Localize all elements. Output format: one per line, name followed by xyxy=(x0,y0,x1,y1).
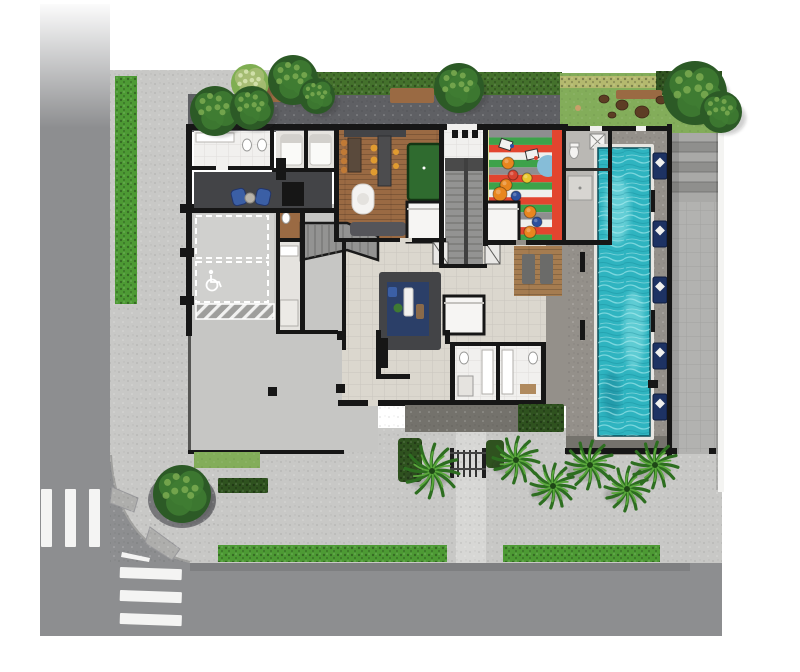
tree-highlight xyxy=(444,75,450,81)
garden-bench xyxy=(616,90,662,99)
bar-stool xyxy=(341,149,347,155)
palm-crown xyxy=(550,483,556,489)
palm-crown xyxy=(652,462,658,468)
tree-highlight xyxy=(706,83,714,91)
toy xyxy=(510,144,514,148)
cushion xyxy=(388,287,397,297)
tree-highlight xyxy=(675,76,683,84)
crosswalk-bar xyxy=(89,489,100,547)
site-plan-image xyxy=(0,0,800,672)
site-plan-svg xyxy=(0,0,800,672)
pouf-highlight xyxy=(510,172,514,176)
bar-stool xyxy=(341,158,347,164)
long-table xyxy=(404,288,413,316)
wall-stub xyxy=(651,190,655,212)
pouf-highlight xyxy=(496,189,501,194)
wood-planter xyxy=(390,88,434,103)
parking-stall-zone xyxy=(194,214,274,306)
shower xyxy=(458,376,473,396)
tree-highlight xyxy=(223,103,229,109)
tree-highlight xyxy=(245,92,250,97)
crosswalk-bar xyxy=(120,590,182,603)
stair-divider xyxy=(464,158,468,266)
door-gap xyxy=(516,240,526,245)
lot-edge-shadow xyxy=(716,100,718,490)
fruit-bowl xyxy=(393,163,399,169)
tree-highlight xyxy=(192,485,199,492)
tree-highlight xyxy=(713,107,718,112)
tree-highlight xyxy=(459,81,465,87)
pouf xyxy=(416,304,424,319)
tree-highlight xyxy=(450,83,456,89)
tree-highlight xyxy=(721,106,726,111)
bar-stool xyxy=(341,140,347,146)
play-pouf xyxy=(532,217,542,227)
tree-highlight xyxy=(251,71,256,76)
tree-highlight xyxy=(238,73,243,78)
hedge-texture xyxy=(218,545,447,562)
vanity xyxy=(482,350,493,394)
door-gap xyxy=(368,400,378,406)
gate-rail xyxy=(450,452,486,454)
lounge-sofa xyxy=(350,222,406,236)
tree-highlight xyxy=(198,109,204,115)
tree-highlight xyxy=(163,492,170,499)
play-mat-stripe xyxy=(489,130,552,137)
tree-highlight xyxy=(207,93,213,99)
hedge-texture xyxy=(503,545,660,562)
tree-highlight xyxy=(215,104,221,110)
tree-highlight xyxy=(696,73,704,81)
tree-highlight xyxy=(725,111,730,116)
terrace xyxy=(670,100,724,492)
pouf-highlight xyxy=(524,175,528,179)
mulch-patch xyxy=(608,112,616,118)
side-table xyxy=(245,193,255,203)
tree-highlight xyxy=(237,106,242,111)
bed-pillow xyxy=(310,135,331,143)
tree-highlight xyxy=(164,479,171,486)
tree-highlight xyxy=(294,65,300,71)
tree-highlight xyxy=(256,77,261,82)
tree-highlight xyxy=(694,84,702,92)
left-hedge xyxy=(115,76,137,304)
mulch-patch xyxy=(599,95,609,103)
lot-shadow xyxy=(190,563,690,571)
sink-counter xyxy=(280,246,298,256)
fruit-bowl xyxy=(371,169,378,176)
palm-crown xyxy=(429,468,435,474)
palm-crown xyxy=(587,462,593,468)
bar-stool xyxy=(341,167,347,173)
gate-bar xyxy=(469,450,471,477)
crosswalk-bar xyxy=(41,489,52,547)
tree-highlight xyxy=(253,82,258,87)
building-shadow-east xyxy=(672,128,679,454)
tree-highlight xyxy=(683,86,691,94)
toilet xyxy=(243,139,252,151)
hedge-texture xyxy=(518,404,564,432)
toilet xyxy=(282,213,290,224)
fruit-bowl xyxy=(393,149,399,155)
crosswalk-vertical xyxy=(41,489,100,547)
door-gap xyxy=(216,166,228,170)
play-pouf xyxy=(508,170,518,180)
tree-highlight xyxy=(253,94,258,99)
pool-lounger xyxy=(653,277,667,303)
tree-highlight xyxy=(243,79,248,84)
lawn-texture xyxy=(194,452,260,468)
bath-bench xyxy=(520,384,536,394)
structural-column xyxy=(268,387,277,396)
water-ripples xyxy=(598,148,650,436)
crosswalk-horizontal xyxy=(120,567,182,626)
shower xyxy=(280,300,298,326)
pool-lounger xyxy=(653,153,667,179)
tree-highlight xyxy=(674,91,682,99)
gate-bar xyxy=(463,450,465,477)
counter-inner xyxy=(357,193,369,205)
road-top-fade xyxy=(38,0,114,128)
lot-edge xyxy=(718,100,724,492)
wall-stub xyxy=(709,448,716,454)
toilet xyxy=(258,139,267,151)
gate-rail xyxy=(450,468,486,470)
tree-highlight xyxy=(285,62,291,68)
tree-highlight xyxy=(722,99,727,104)
play-mat-stripe xyxy=(489,137,552,144)
toilet xyxy=(460,352,469,364)
tree-highlight xyxy=(259,101,264,106)
gate-bar xyxy=(475,450,477,477)
tree-highlight xyxy=(256,106,261,111)
hedge-texture xyxy=(218,478,268,493)
fruit-bowl xyxy=(371,145,378,152)
wheelchair-head xyxy=(209,270,213,274)
plant xyxy=(394,304,403,313)
tree-highlight xyxy=(728,105,733,110)
tree-highlight xyxy=(301,72,307,78)
armchair xyxy=(254,188,271,207)
tree-highlight xyxy=(284,75,290,81)
tree-highlight xyxy=(238,97,243,102)
tree-highlight xyxy=(181,486,188,493)
wall-gap xyxy=(636,126,646,131)
tree-highlight xyxy=(252,102,257,107)
bike-rack xyxy=(452,130,458,138)
pool-lounger xyxy=(653,221,667,247)
tree-highlight xyxy=(171,488,178,495)
tree-highlight xyxy=(298,78,304,84)
play-pouf xyxy=(493,187,507,201)
hatched-zone xyxy=(196,304,274,319)
pouf-highlight xyxy=(526,208,530,212)
tree-highlight xyxy=(216,96,222,102)
pouf-highlight xyxy=(502,181,506,185)
tree-highlight xyxy=(183,476,190,483)
tree-highlight xyxy=(320,95,324,99)
wall-stub xyxy=(580,252,585,272)
tree-highlight xyxy=(310,92,314,96)
tree-highlight xyxy=(293,73,299,79)
billiard-table xyxy=(408,144,441,200)
bike-rack xyxy=(462,130,468,138)
play-pouf xyxy=(502,157,514,169)
mulch-patch xyxy=(616,100,628,110)
door-gap xyxy=(400,238,412,242)
planter-box xyxy=(648,380,658,388)
tree-highlight xyxy=(442,86,448,92)
toilet-tank xyxy=(570,143,579,147)
play-pouf xyxy=(522,173,532,183)
tree-highlight xyxy=(323,90,327,94)
wall-stub xyxy=(580,320,585,340)
tree-highlight xyxy=(318,85,322,89)
play-mat-stripe xyxy=(489,175,552,182)
deck-lounger xyxy=(540,254,553,284)
pet xyxy=(575,105,581,111)
play-pouf xyxy=(511,191,521,201)
tree-highlight xyxy=(244,69,249,74)
play-pouf xyxy=(524,206,536,218)
tree-highlight xyxy=(305,95,309,99)
vanity xyxy=(502,350,513,394)
wall-stub xyxy=(651,310,655,332)
fruit-bowl xyxy=(371,157,378,164)
tree-highlight xyxy=(173,473,180,480)
play-mat-stripe xyxy=(489,145,552,152)
play-pouf xyxy=(524,226,536,238)
tree-highlight xyxy=(244,103,249,108)
crosswalk-bar xyxy=(120,613,182,626)
tree-highlight xyxy=(451,70,457,76)
deck-planks xyxy=(514,246,562,296)
pouf-highlight xyxy=(526,228,530,232)
tree-highlight xyxy=(467,80,473,86)
tree-highlight xyxy=(311,83,315,87)
pool-lounger xyxy=(653,343,667,369)
tree-highlight xyxy=(278,67,284,73)
crosswalk-bar xyxy=(65,489,76,547)
kitchen-island xyxy=(378,136,391,186)
bar-counter xyxy=(348,138,361,172)
entrance-gap xyxy=(447,124,477,130)
tree-highlight xyxy=(220,109,226,115)
pouf-highlight xyxy=(513,193,517,197)
shower-drain xyxy=(579,187,582,190)
bed-pillow xyxy=(281,135,302,143)
tree-highlight xyxy=(317,91,321,95)
tree-highlight xyxy=(187,492,194,499)
mulch-patch xyxy=(635,106,649,118)
tree-highlight xyxy=(707,111,712,116)
bike-rack xyxy=(472,130,478,138)
tree-highlight xyxy=(714,97,719,102)
tree-highlight xyxy=(200,98,206,104)
elevator xyxy=(444,296,484,334)
tree-highlight xyxy=(250,78,255,83)
tree-highlight xyxy=(206,106,212,112)
palm-crown xyxy=(513,457,519,463)
tree-highlight xyxy=(237,82,242,87)
structural-column xyxy=(336,384,345,393)
hedge-texture xyxy=(115,76,137,304)
billiard-ball xyxy=(423,167,426,170)
wall-gap xyxy=(590,126,602,131)
tree-highlight xyxy=(464,86,470,92)
toilet xyxy=(529,352,538,364)
palm-crown xyxy=(624,486,630,492)
toy xyxy=(534,156,538,160)
crosswalk-bar xyxy=(120,567,182,580)
pool-lounger xyxy=(653,394,667,420)
tree-highlight xyxy=(685,70,693,78)
pouf-highlight xyxy=(504,159,508,163)
tree-highlight xyxy=(460,73,466,79)
tree-highlight xyxy=(276,78,282,84)
tree-highlight xyxy=(708,101,713,106)
pouf-highlight xyxy=(534,219,538,223)
deck-lounger xyxy=(522,254,535,284)
tree-highlight xyxy=(306,87,310,91)
hedge-texture xyxy=(560,76,658,88)
